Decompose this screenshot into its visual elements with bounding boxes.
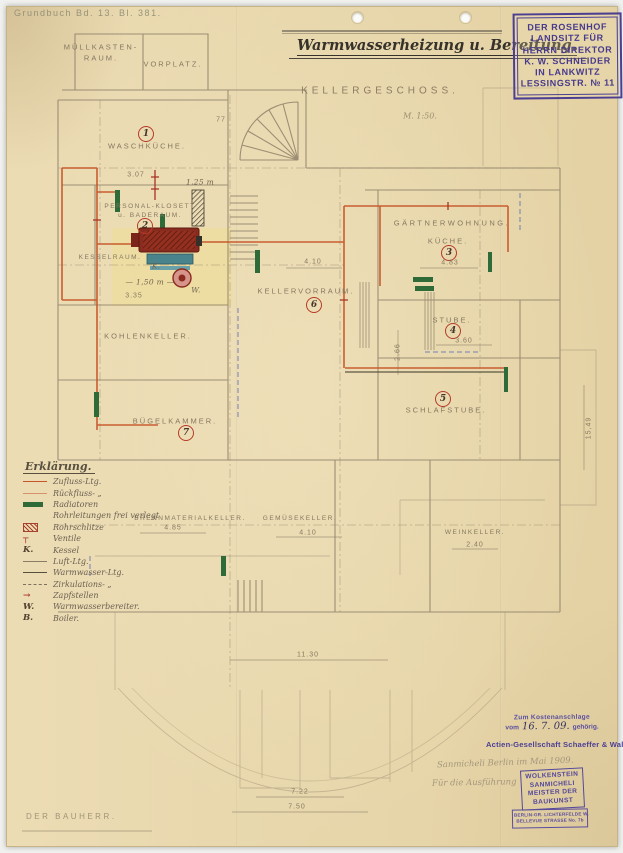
scale-note: M. 1:50. [403, 112, 437, 121]
company-stamp: Actien-Gesellschaft Schaeffer & Walcker [486, 740, 623, 749]
legend-row: B.Boiler. [23, 613, 155, 624]
legend-label: Rückfluss- „ [53, 489, 102, 498]
radiator-symbol [23, 502, 43, 507]
room-label-gaertnerwohnung: GÄRTNERWOHNUNG. [394, 217, 510, 228]
legend-label: Ventile [53, 534, 81, 543]
legend-row: Rückfluss- „ [23, 487, 155, 498]
room-label-line: PERSONAL-KLOSETT [104, 203, 195, 212]
return-line-symbol [23, 493, 47, 494]
room-label-weinkeller: WEINKELLER. [445, 528, 505, 538]
valve-symbol: ┬ [23, 534, 53, 544]
dim-wein: 2.40 [466, 542, 484, 549]
dim-stube: 3.60 [455, 338, 473, 345]
room-label-schlafstube: SCHLAFSTUBE. [406, 404, 487, 415]
dim-bottom3: 7.50 [288, 804, 306, 811]
legend-row: Zufluss-Ltg. [23, 476, 155, 487]
dim-right: 15,49 [586, 417, 593, 440]
dim-gemuese: 4.10 [299, 530, 317, 537]
pencil-note-ausfuehrung: Für die Ausführung [432, 777, 517, 788]
dim-pipe: 1,25 m [186, 178, 214, 187]
room-label-waschkueche: WASCHKÜCHE. [108, 140, 186, 151]
faint-pencil-lines [95, 88, 596, 792]
dim-kueche: 4.83 [441, 260, 459, 267]
room-number-2: 2 [137, 218, 153, 234]
pipe-chase-symbol [23, 523, 38, 532]
dim-brenn: 4.85 [164, 525, 182, 532]
dim-stube-h: 2.66 [395, 343, 402, 361]
cost-stamp-date: 16. 7. 09. [522, 721, 570, 732]
dim-kessel-len: — 1,50 m — [126, 278, 175, 287]
address-stamp: BERLIN-GR. LICHTERFELDE W. BELLEVUE STRA… [512, 808, 588, 828]
punch-hole [460, 12, 471, 23]
legend-label: Rohrleitungen frei verlegt [53, 511, 159, 520]
legend-label: Radiatoren [53, 500, 98, 509]
floor-label: KELLERGESCHOSS. [301, 84, 459, 99]
boiler-symbol: B. [23, 613, 53, 623]
address-stamp-line: BELLEVUE STRASSE No. 7b [514, 818, 586, 826]
legend-label: Zapfstellen [53, 591, 98, 600]
legend-label: Kessel [53, 546, 79, 555]
room-number-1: 1 [138, 126, 154, 142]
room-number-7: 7 [178, 425, 194, 441]
warmwater-line-symbol [23, 572, 47, 573]
legend-label: Rohrschlitze [53, 523, 104, 532]
legend-label: Warmwasser-Ltg. [53, 568, 124, 577]
legend-label: Warmwasserbereiter. [53, 602, 140, 611]
owner-stamp-line: LANDSITZ FÜR [520, 33, 615, 45]
room-label-line: MÜLLKASTEN- [64, 43, 139, 54]
legend-row: W.Warmwasserbereiter. [23, 601, 155, 612]
bauherr-label: DER BAUHERR. [26, 812, 116, 821]
kessel-symbol: K. [23, 545, 53, 555]
legend: Erklärung. Zufluss-Ltg. Rückfluss- „ Rad… [23, 457, 155, 624]
room-label-muellkasten: MÜLLKASTEN- RAUM. [64, 43, 139, 64]
legend-title: Erklärung. [23, 460, 95, 474]
kessel-w-mark: W. [191, 286, 200, 295]
punch-hole [352, 12, 363, 23]
owner-stamp-line: HERRN DIREKTOR [520, 44, 615, 56]
legend-row: Luft-Ltg. [23, 556, 155, 567]
legend-label: Luft-Ltg. [53, 557, 89, 566]
legend-label: Zirkulations- „ [53, 580, 112, 589]
room-label-kesselraum: KESSELRAUM. [79, 253, 142, 263]
tap-symbol: → [23, 591, 53, 601]
dim-kvr: 4.10 [304, 259, 322, 266]
supply-line-symbol [23, 481, 47, 482]
room-label-gemuesekeller: GEMÜSEKELLER. [263, 514, 337, 524]
kessel-k-mark: K. [152, 262, 161, 271]
owner-stamp-line: K. W. SCHNEIDER [520, 55, 615, 67]
legend-row: K.Kessel [23, 544, 155, 555]
dim-77: 77 [216, 117, 226, 124]
room-label-buegelkammer: BÜGELKAMMER. [133, 415, 217, 426]
dim-kessel-w: 3.35 [125, 293, 143, 300]
legend-label: Zufluss-Ltg. [53, 477, 101, 486]
room-label-line: RAUM. [64, 53, 139, 64]
legend-row: Rohrleitungen frei verlegt [23, 510, 155, 521]
architect-stamp: WOLKENSTEIN SANMICHELI MEISTER DER BAUKU… [520, 767, 585, 810]
room-number-6: 6 [306, 297, 322, 313]
legend-row: Zirkulations- „ [23, 579, 155, 590]
room-label-kellervorraum: KELLERVORRAUM. [257, 285, 354, 296]
legend-row: Warmwasser-Ltg. [23, 567, 155, 578]
legend-row: Radiatoren [23, 499, 155, 510]
cost-stamp-vom: vom [505, 724, 519, 731]
legend-label: Boiler. [53, 614, 79, 623]
scanned-plan-sheet: Grundbuch Bd. 13. Bl. 381. Warmwasserhei… [0, 0, 623, 853]
dim-wasch: 3.07 [127, 172, 145, 179]
circulation-line-symbol [23, 584, 47, 585]
legend-row: →Zapfstellen [23, 590, 155, 601]
owner-stamp: DER ROSENHOF LANDSITZ FÜR HERRN DIREKTOR… [513, 12, 623, 99]
legend-row: Rohrschlitze [23, 522, 155, 533]
cost-stamp-gehoerig: gehörig. [573, 724, 599, 731]
room-label-kohlenkeller: KOHLENKELLER. [104, 330, 192, 341]
air-line-symbol [23, 561, 47, 562]
dim-bottom1: 11.30 [297, 652, 319, 659]
room-label-klosett: PERSONAL-KLOSETT u. BADERAUM. [104, 203, 195, 221]
owner-stamp-line: LESSINGSTR. № 11 [520, 78, 615, 90]
water-heater-symbol: W. [23, 602, 53, 612]
room-label-vorplatz: VORPLATZ. [143, 58, 202, 69]
grundbuch-note: Grundbuch Bd. 13. Bl. 381. [14, 8, 162, 18]
legend-row: ┬Ventile [23, 533, 155, 544]
dim-bottom2: 7.22 [291, 789, 309, 796]
cost-estimate-stamp: Zum Kostenanschlage vom 16. 7. 09. gehör… [497, 714, 607, 733]
